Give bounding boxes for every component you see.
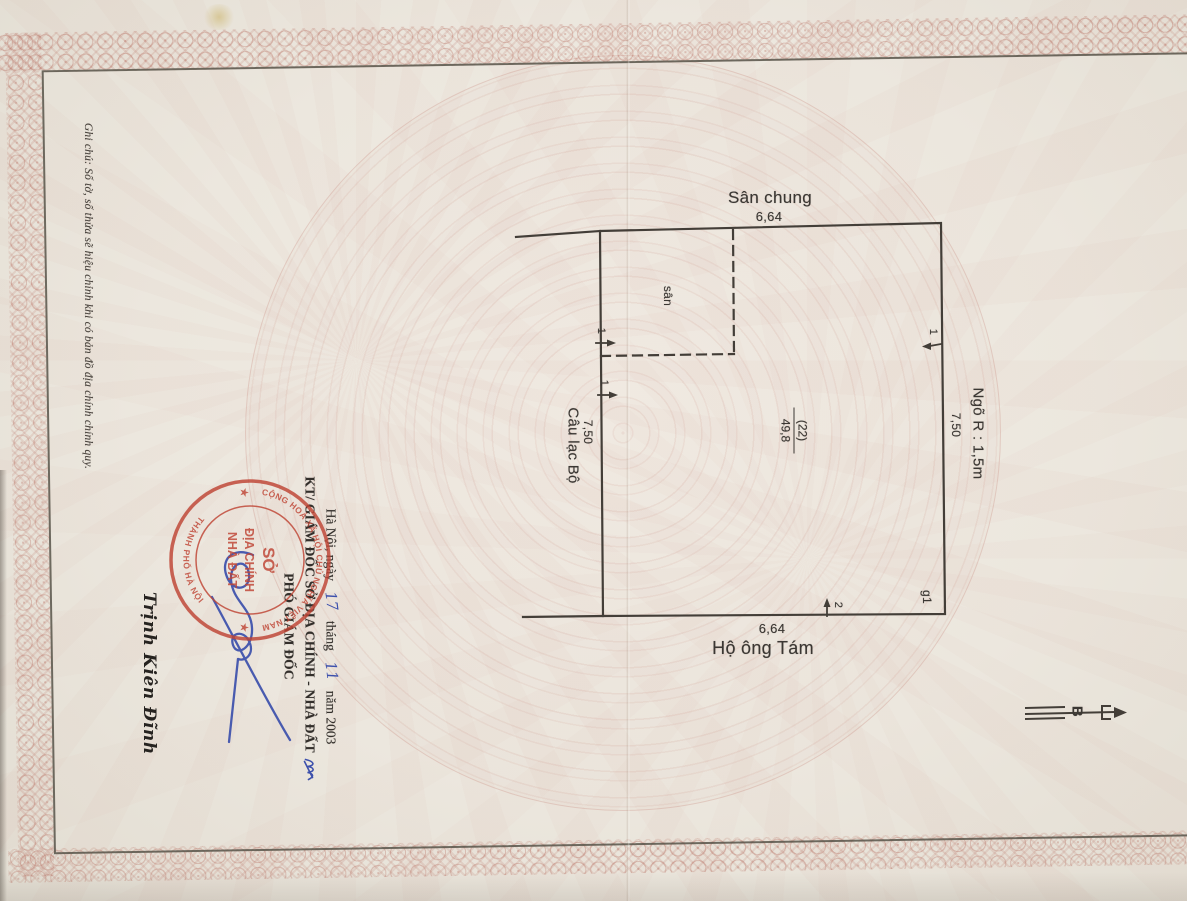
parcel-number-area: (22) 49,8 [779, 408, 810, 454]
stamp-center-line3: NHÀ ĐẤT [225, 532, 240, 589]
marker-arrowhead-left-1 [607, 340, 616, 347]
signer-name: Trịnh Kiên Đĩnh [137, 592, 159, 752]
signature-initials-icon [303, 758, 319, 782]
dashed-yard-line-vertical [733, 230, 734, 354]
marker-arrowhead-left-2 [609, 392, 618, 399]
dimension-bottom: 6,64 [732, 621, 812, 636]
point-marker-1c: 1 [927, 325, 939, 339]
date-nam: năm 2003 [324, 691, 339, 745]
north-arrow-tail-2 [1026, 718, 1064, 719]
adjacent-label-right: Ngõ R : 1,5m [970, 379, 987, 489]
north-label: B [1069, 703, 1086, 721]
point-marker-1b: 1 [598, 376, 610, 390]
dimension-top: 6,64 [729, 209, 809, 224]
boundary-extension-bottom [523, 616, 603, 617]
dimension-left: 7,50 [581, 412, 595, 452]
official-stamp: CỘNG HOÀ XÃ HỘI CHỦ NGHĨA VIỆT NAM THÀNH… [160, 470, 340, 650]
dashed-yard-line-horizontal [601, 354, 734, 356]
scanned-document-photo: Ghi chú: Số tờ, số thửa sẽ hiệu chỉnh kh… [0, 0, 1187, 901]
plot-boundary [600, 223, 945, 616]
signature-tail-1 [229, 659, 238, 742]
parcel-number: (22) [796, 408, 810, 454]
gate-label: g1 [920, 587, 934, 607]
boundary-extension-top [516, 231, 600, 237]
north-arrow-tail-1 [1026, 707, 1064, 708]
adjacent-label-top: Sân chung [690, 188, 850, 208]
north-arrowhead [1114, 707, 1127, 718]
parcel-area: 49,8 [779, 408, 795, 454]
point-marker-2: 2 [832, 598, 844, 612]
adjacent-label-left: Câu lạc Bộ [565, 391, 582, 501]
marker-arrow-right [930, 344, 941, 346]
dimension-right: 7,50 [949, 405, 963, 445]
marker-arrows [596, 340, 941, 617]
stamp-center-line2: ĐỊA CHÍNH [242, 528, 257, 592]
handwritten-month: 11 [319, 660, 342, 682]
marker-arrowhead-right [922, 343, 931, 351]
stamp-star-left: ★ [238, 488, 249, 497]
point-marker-1a: 1 [595, 324, 607, 338]
yard-label: sân [661, 281, 675, 311]
stamp-center-line1: SỞ [259, 547, 278, 573]
stamp-star-right: ★ [238, 623, 249, 632]
marker-arrowhead-bottom [824, 598, 831, 607]
adjacent-label-bottom: Hộ ông Tám [683, 638, 843, 659]
stamp-ring-text-bottom: THÀNH PHỐ HÀ NỘI [181, 515, 206, 606]
